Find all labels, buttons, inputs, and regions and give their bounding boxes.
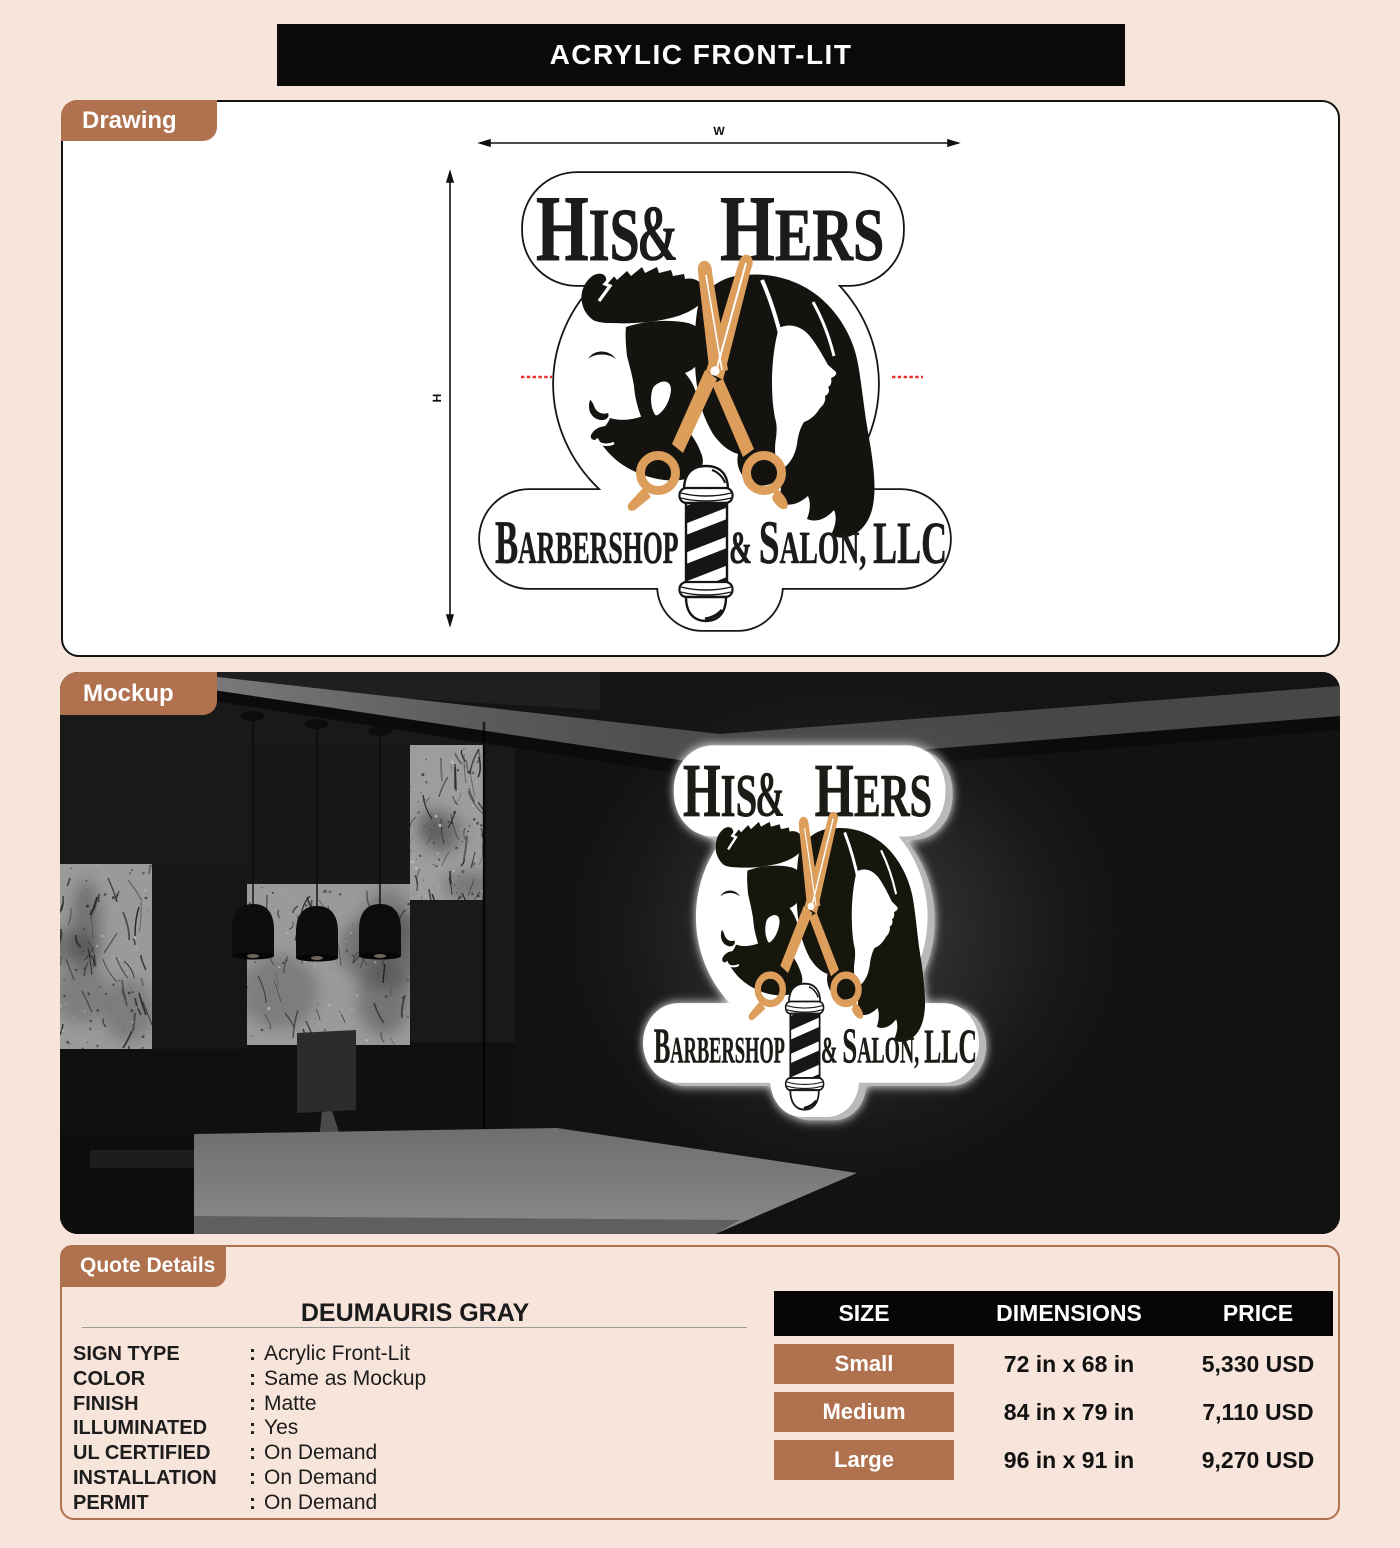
svg-text:W: W xyxy=(713,124,725,138)
svg-text:H: H xyxy=(430,394,444,403)
